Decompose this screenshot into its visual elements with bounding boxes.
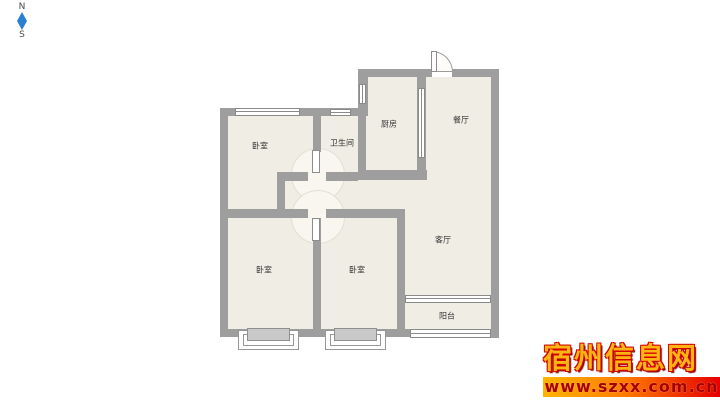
entry-door-leaf <box>431 51 437 72</box>
compass-needle-south-icon <box>17 21 27 30</box>
wall-hall-bottom <box>285 209 308 218</box>
room-label-balcony: 阳台 <box>439 311 455 322</box>
window-bathroom <box>330 109 351 116</box>
bay-window-sill <box>334 328 377 341</box>
room-label-bedroom-sw: 卧室 <box>256 265 272 276</box>
window-balcony-outer <box>410 329 491 338</box>
window-bedroom-nw <box>235 108 300 116</box>
compass-needle-north-icon <box>17 12 27 21</box>
compass-north-label: N <box>6 2 38 12</box>
room-label-kitchen: 厨房 <box>381 119 397 130</box>
wall-living-left <box>397 209 405 329</box>
window-kitchen <box>359 84 366 104</box>
room-label-bedroom-nw: 卧室 <box>252 141 268 152</box>
door-leaf-bathroom <box>312 150 320 173</box>
floor-plan-page: N S 卧室 卫生间 厨房 餐厅 <box>0 0 720 405</box>
wall-bedroom-sw-top <box>220 209 285 218</box>
compass-south-label: S <box>6 30 38 40</box>
wall-outer-left <box>220 108 228 337</box>
watermark: 宿州信息网 www.szxx.com.cn <box>543 341 720 397</box>
wall-hall-top <box>326 172 358 181</box>
compass: N S <box>6 2 38 40</box>
room-label-bedroom-s: 卧室 <box>349 265 365 276</box>
room-label-dining: 餐厅 <box>453 115 469 126</box>
window-living-balcony <box>405 295 491 303</box>
wall-outer-right <box>491 69 499 338</box>
wall-top-right-section <box>358 69 432 77</box>
floor-kitchen-dining-area <box>366 77 491 116</box>
window-kitchen-dining <box>418 88 425 158</box>
wall-kitchen-bottom <box>358 170 427 180</box>
room-label-living: 客厅 <box>435 235 451 246</box>
door-leaf-bedroom <box>312 218 320 241</box>
bay-window-sill <box>247 328 290 341</box>
watermark-site-name: 宿州信息网 <box>543 341 720 375</box>
room-label-bathroom: 卫生间 <box>330 138 354 149</box>
wall-bedroom-bathroom-divider <box>313 108 321 152</box>
watermark-site-url: www.szxx.com.cn <box>543 377 720 397</box>
wall-hall-bottom <box>326 209 397 218</box>
